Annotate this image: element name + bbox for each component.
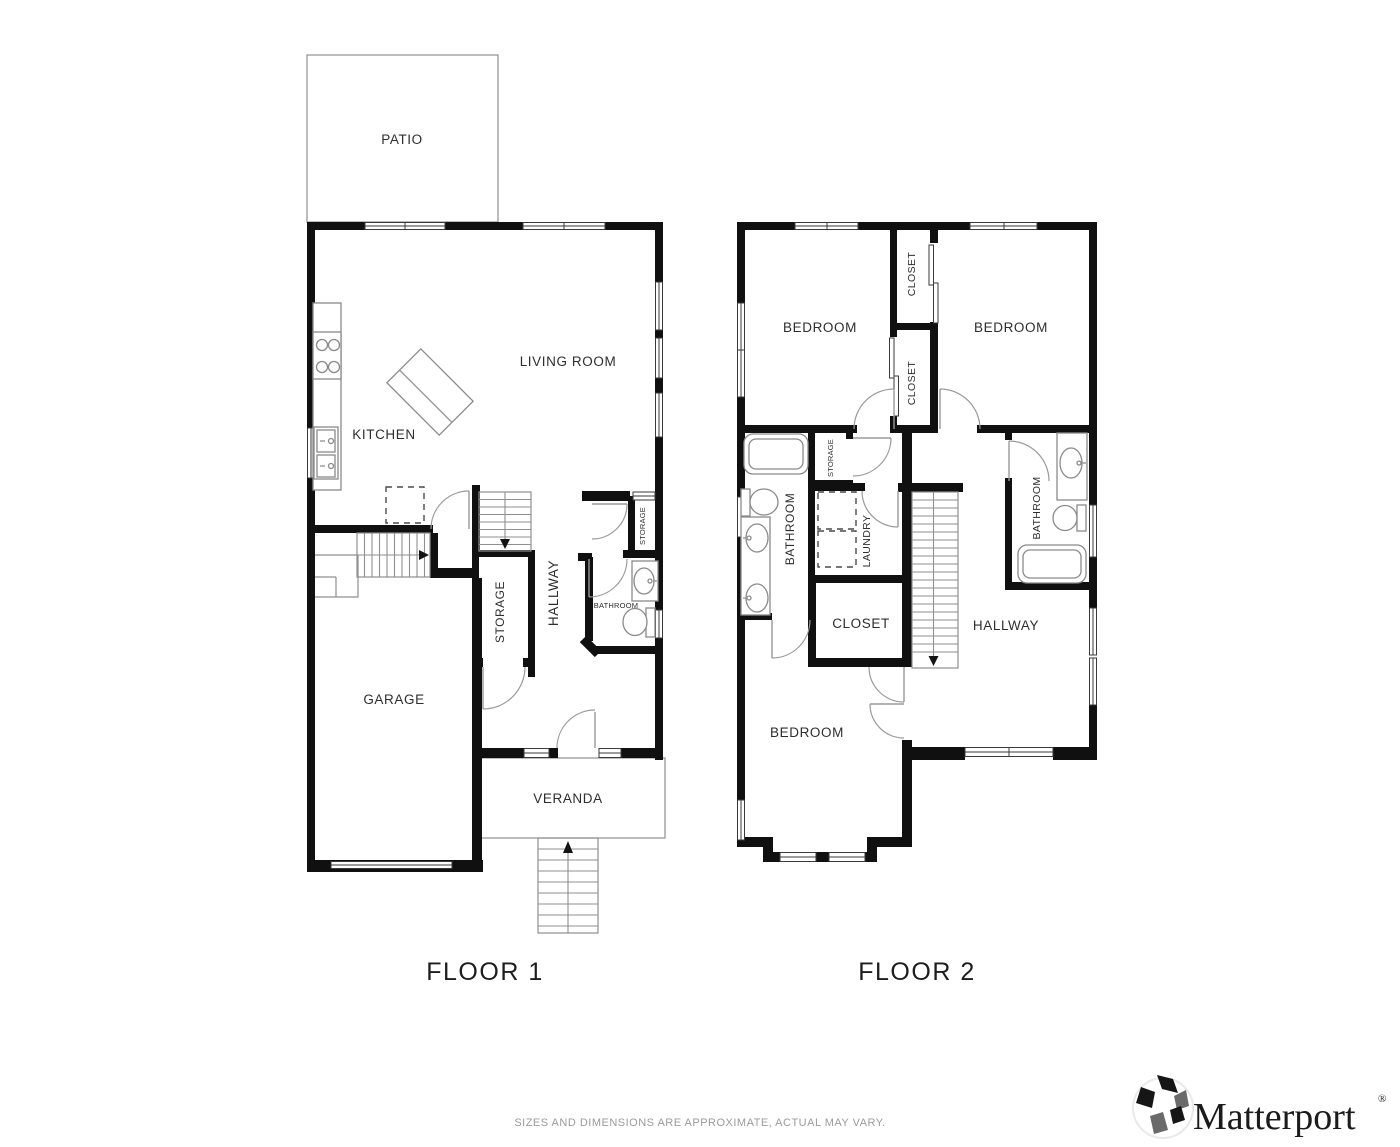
room-label-garage: GARAGE — [363, 692, 424, 707]
room-label-closet-upper: CLOSET — [906, 252, 918, 297]
room-label-living-room: LIVING ROOM — [520, 354, 617, 369]
toilet-bowl — [623, 609, 647, 636]
room-label-bathroom-left: BATHROOM — [783, 493, 797, 565]
dishwasher — [386, 487, 424, 523]
room-label-veranda: VERANDA — [533, 791, 602, 806]
room-label-closet-lower: CLOSET — [906, 361, 918, 406]
matterport-registered-mark: ® — [1378, 1093, 1386, 1105]
exterior-stairs — [538, 838, 598, 933]
kitchen-fixtures — [313, 303, 473, 523]
matterport-logo: Matterport ® — [1133, 1075, 1386, 1138]
sofa — [387, 349, 473, 435]
floor2-stairs — [912, 492, 958, 668]
floorplan-page: PATIO LIVING ROOM KITCHEN STORAGE HALLWA… — [0, 0, 1400, 1147]
room-label-storage-small: STORAGE — [638, 507, 647, 545]
floor1-title: FLOOR 1 — [426, 958, 543, 986]
toilet-bowl — [1053, 506, 1077, 531]
room-label-hallway-f2: HALLWAY — [973, 618, 1039, 633]
room-label-bedroom-left: BEDROOM — [783, 320, 857, 335]
floor1-bathroom-fixtures — [623, 561, 658, 637]
floor2-left-bathroom-fixtures — [741, 434, 808, 615]
floor1-plan: PATIO LIVING ROOM KITCHEN STORAGE HALLWA… — [307, 55, 665, 986]
floor1-labels: PATIO LIVING ROOM KITCHEN STORAGE HALLWA… — [352, 132, 647, 806]
floor2-title: FLOOR 2 — [858, 958, 975, 986]
garage-landing — [311, 555, 358, 597]
floor1-walls — [307, 222, 663, 872]
floor2-right-bathroom-fixtures — [1018, 433, 1087, 583]
room-label-storage-f2: STORAGE — [826, 439, 835, 477]
toilet-bowl — [750, 489, 778, 515]
room-label-bedroom-bottom: BEDROOM — [770, 725, 844, 740]
room-label-kitchen: KITCHEN — [352, 427, 415, 442]
toilet-tank — [741, 489, 750, 516]
room-label-laundry: LAUNDRY — [861, 515, 873, 568]
room-label-patio: PATIO — [381, 132, 423, 147]
room-label-closet: CLOSET — [832, 616, 890, 631]
room-label-bathroom-right: BATHROOM — [1031, 476, 1043, 539]
room-label-bedroom-right: BEDROOM — [974, 320, 1048, 335]
disclaimer-text: SIZES AND DIMENSIONS ARE APPROXIMATE, AC… — [514, 1117, 885, 1129]
floorplan-drawing: PATIO LIVING ROOM KITCHEN STORAGE HALLWA… — [0, 0, 1400, 1147]
matterport-logo-icon — [1133, 1075, 1193, 1138]
room-label-hallway: HALLWAY — [546, 560, 561, 626]
matterport-logo-text: Matterport — [1193, 1096, 1356, 1138]
floor2-plan: BEDROOM BEDROOM CLOSET CLOSET BATHROOM S… — [737, 222, 1097, 986]
laundry-machines — [818, 492, 856, 567]
room-label-bathroom-f1: BATHROOM — [594, 601, 638, 610]
floor1-windows — [308, 223, 663, 869]
room-label-storage: STORAGE — [493, 581, 507, 643]
floor1-stairs — [479, 492, 531, 551]
toilet-tank — [1077, 505, 1086, 531]
garage-stairs — [357, 533, 430, 577]
